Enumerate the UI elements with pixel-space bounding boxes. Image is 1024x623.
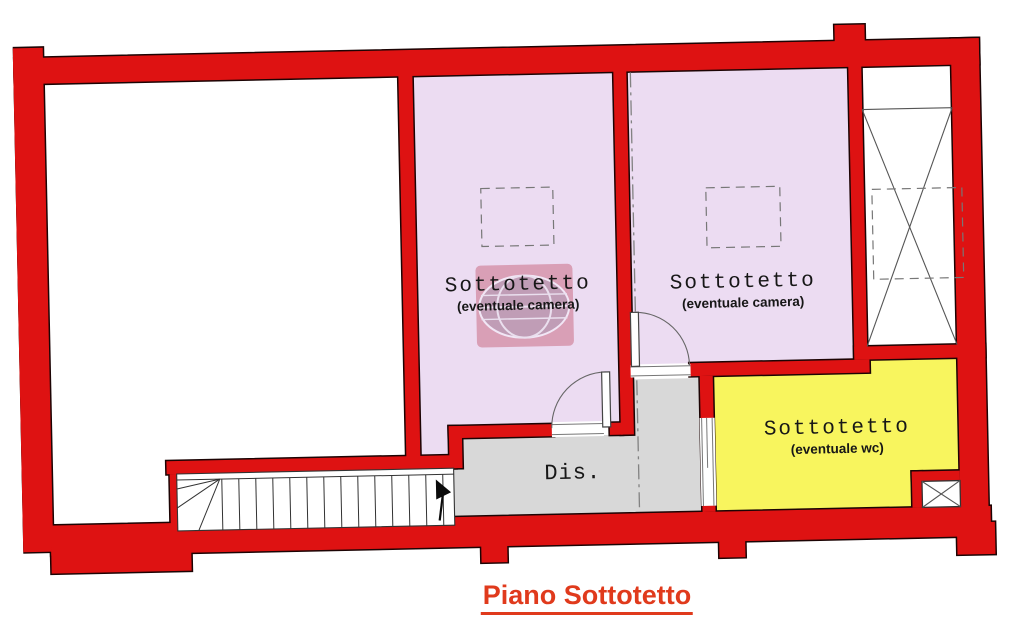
label-dis: Dis. [544,460,601,486]
watermark-logo [475,264,574,348]
door-wc-opening [700,418,717,506]
floor-plan: Sottotetto (eventuale camera) Sottotetto… [12,10,1003,582]
door-leaf [630,312,639,366]
room-camera-right [625,65,854,365]
page-title: Piano Sottotetto [481,580,693,615]
floor-plan-drawing [12,10,1003,582]
staircase [177,468,455,531]
door-leaf [602,372,611,427]
wc-shaft-x-box [922,481,961,508]
room-camera-left [412,70,621,458]
room-shaft [861,63,957,347]
floor-plan-page: { "title": "Piano Sottotetto", "colors":… [0,0,1024,623]
